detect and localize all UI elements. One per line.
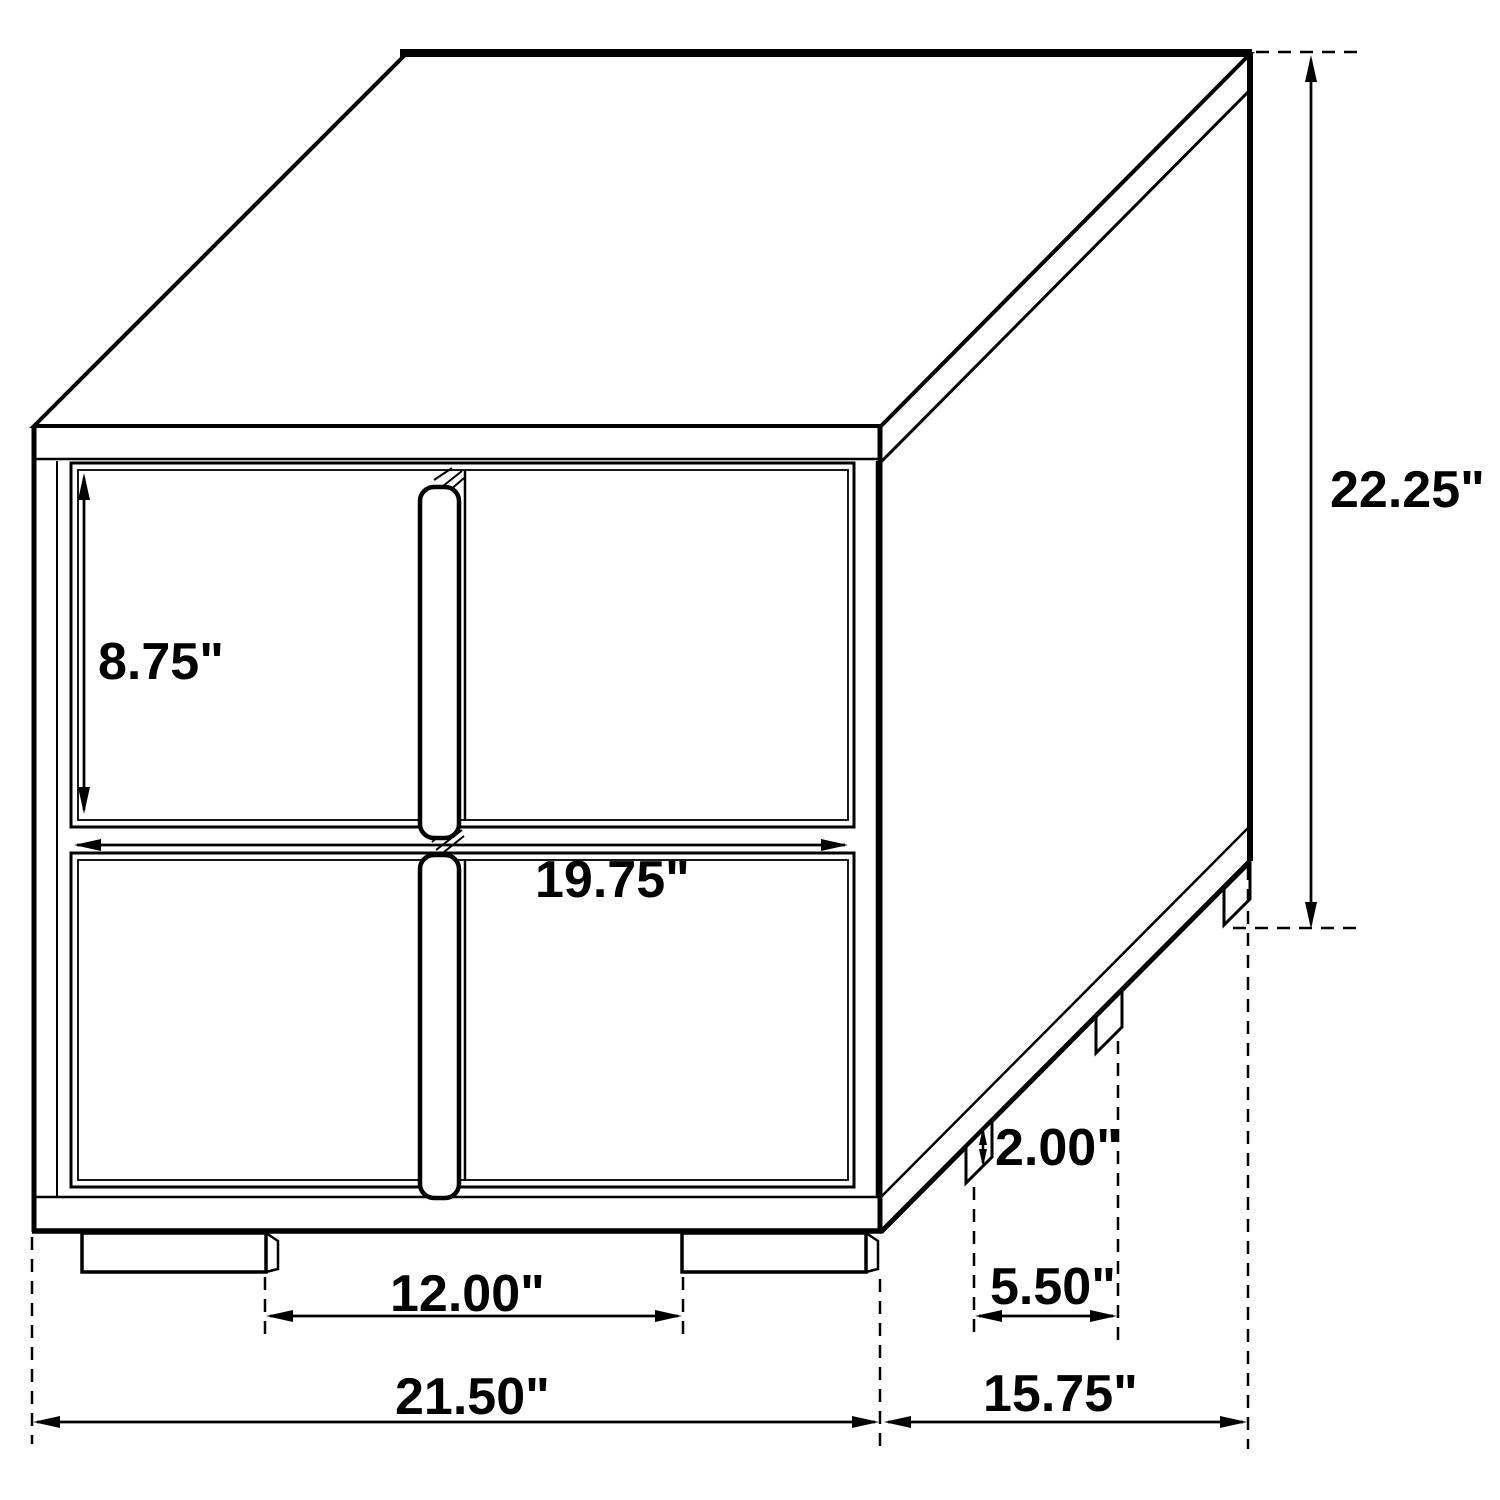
top-drawer-handle <box>420 487 459 838</box>
front-right-foot <box>682 1233 866 1272</box>
dimension-label-foot-height: 2.00" <box>995 1119 1121 1177</box>
drawer-handles <box>420 468 464 1198</box>
dimension-label-front-feet-gap: 12.00" <box>390 1265 545 1323</box>
dimension-label-drawer-front-width: 19.75" <box>535 851 690 909</box>
dimension-label-side-feet-gap: 5.50" <box>990 1258 1116 1316</box>
front-right-foot-side <box>866 1233 878 1272</box>
nightstand-dimension-diagram: 8.75" 19.75" 22.25" 2.00" 12.00" <box>0 0 1500 1500</box>
bottom-drawer-handle <box>420 855 459 1198</box>
dimension-label-drawer-front-height: 8.75" <box>98 633 224 691</box>
dimension-label-overall-height: 22.25" <box>1330 461 1485 519</box>
drawer-fronts <box>71 463 854 1187</box>
top-face <box>34 54 1250 426</box>
dimension-foot-height: 2.00" <box>979 1119 1121 1177</box>
dimension-side-feet-gap: 5.50" <box>974 1041 1118 1340</box>
dimension-front-feet-gap: 12.00" <box>265 1265 683 1338</box>
diagram-canvas: 8.75" 19.75" 22.25" 2.00" 12.00" <box>0 0 1500 1500</box>
bottom-drawer-front-bevel <box>78 860 848 1180</box>
front-left-foot <box>82 1233 266 1272</box>
dimension-label-overall-depth: 15.75" <box>983 1365 1138 1423</box>
front-left-foot-side <box>266 1233 278 1272</box>
dimension-overall-height: 22.25" <box>1233 52 1485 929</box>
dimension-label-overall-width: 21.50" <box>395 1368 550 1426</box>
